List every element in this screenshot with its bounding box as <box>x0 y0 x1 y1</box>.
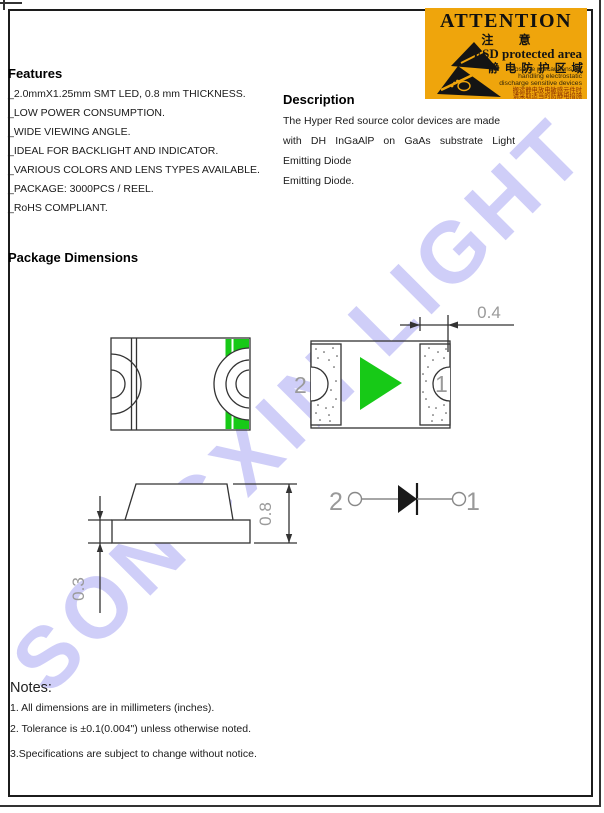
esd-hand-finger <box>451 85 454 88</box>
top-view-pads-drawing: 2 1 0.4 <box>294 303 514 428</box>
notes-heading: Notes: <box>10 680 52 696</box>
precaution-line: handling electrostatic <box>472 73 582 80</box>
esd-hand-finger <box>453 82 456 85</box>
dim-text-0-3: 0.3 <box>69 577 88 601</box>
polarity-triangle <box>360 357 402 410</box>
description-heading: Description <box>283 92 355 107</box>
schematic-terminal-left <box>349 493 362 506</box>
dim-arrow <box>448 322 458 329</box>
scan-mark-left <box>3 0 5 10</box>
description-text: The Hyper Red source color devices are m… <box>283 111 515 191</box>
precaution-line-cn: 请采取适当的防静电措施 <box>472 94 582 99</box>
feature-item: _2.0mmX1.25mm SMT LED, 0.8 mm THICKNESS. <box>8 85 278 104</box>
diode-triangle <box>398 485 417 513</box>
note-item: 3.Specifications are subject to change w… <box>10 748 257 760</box>
feature-item: _WIDE VIEWING ANGLE. <box>8 123 278 142</box>
package-dimensions-heading: Package Dimensions <box>8 250 138 265</box>
dim-arrow <box>286 534 292 543</box>
note-item: 1. All dimensions are in millimeters (in… <box>10 702 214 714</box>
description-line: The Hyper Red source color devices are m… <box>283 111 515 131</box>
attention-title: ATTENTION <box>425 10 587 33</box>
esd-attention-box: ATTENTION 注 意 ESD protected area 静 电 防 护… <box>425 8 587 99</box>
description-line: Emitting Diode. <box>283 171 515 191</box>
dim-arrow <box>410 322 420 329</box>
feature-item: _VARIOUS COLORS AND LENS TYPES AVAILABLE… <box>8 161 278 180</box>
precaution-line: Observe precautions for <box>472 66 582 73</box>
dim-arrow <box>97 511 103 520</box>
feature-item: _IDEAL FOR BACKLIGHT AND INDICATOR. <box>8 142 278 161</box>
features-heading: Features <box>8 66 62 81</box>
description-line: Emitting Diode <box>283 151 515 171</box>
diode-schematic: 2 1 <box>329 483 480 516</box>
dim-text-0-4: 0.4 <box>477 303 501 322</box>
pad-label-2: 2 <box>294 372 307 398</box>
scan-edge-bottom <box>0 805 601 807</box>
base-profile <box>112 520 250 543</box>
dim-arrow <box>286 484 292 493</box>
lens-profile <box>125 484 233 520</box>
description-line: with DH InGaAlP on GaAs substrate Light <box>283 131 515 151</box>
esd-hand-finger <box>456 80 459 83</box>
feature-item: _LOW POWER CONSUMPTION. <box>8 104 278 123</box>
schematic-pin-2: 2 <box>329 488 343 516</box>
dim-arrow <box>97 543 103 552</box>
datasheet-page: SONGXIN LIGHT ATTENTION 注 意 ESD protecte… <box>0 0 604 813</box>
left-notch-arc <box>111 370 125 398</box>
schematic-terminal-right <box>453 493 466 506</box>
feature-item: _RoHS COMPLIANT. <box>8 199 278 218</box>
esd-precaution-text: Observe precautions for handling electro… <box>472 66 582 99</box>
pad-label-1: 1 <box>435 371 448 397</box>
features-list: _2.0mmX1.25mm SMT LED, 0.8 mm THICKNESS.… <box>8 85 278 218</box>
top-view-lens-drawing <box>111 338 286 430</box>
scan-edge-right <box>599 0 601 807</box>
note-item: 2. Tolerance is ±0.1(0.004") unless othe… <box>10 723 251 735</box>
schematic-pin-1: 1 <box>466 488 480 516</box>
side-view-drawing: 0.8 0.3 <box>69 484 297 613</box>
dim-text-0-8: 0.8 <box>256 502 275 526</box>
feature-item: _PACKAGE: 3000PCS / REEL. <box>8 180 278 199</box>
